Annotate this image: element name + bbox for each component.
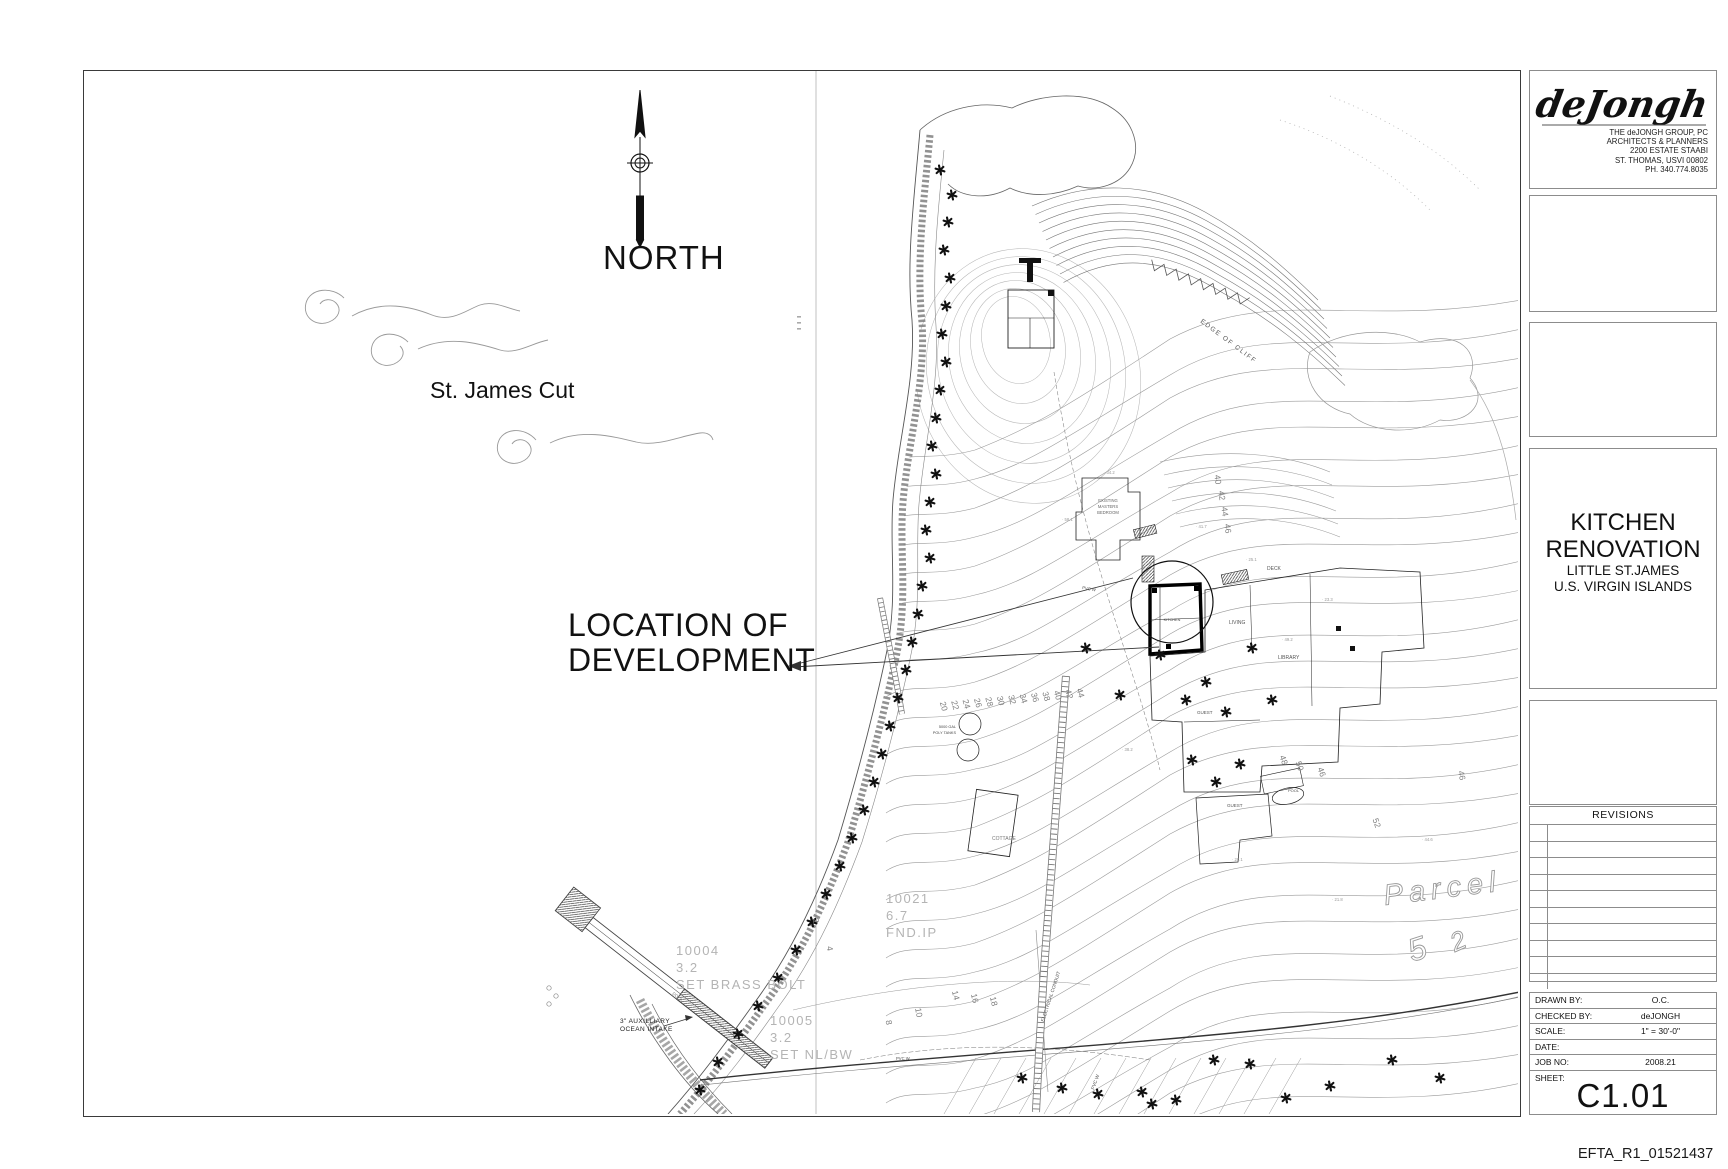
revision-row — [1530, 891, 1716, 908]
empty-panel-box-2 — [1529, 322, 1717, 437]
revision-desc-cell — [1548, 957, 1716, 973]
info-row-sheet: SHEET: C1.01 — [1530, 1071, 1716, 1118]
checked-by-label: CHECKED BY: — [1530, 1009, 1605, 1024]
title-block-info: DRAWN BY: O.C. CHECKED BY: deJONGH SCALE… — [1529, 992, 1717, 1115]
firm-address: THE deJONGH GROUP, PC ARCHITECTS & PLANN… — [1607, 128, 1708, 174]
revision-number-cell — [1530, 891, 1548, 907]
revision-desc-cell — [1548, 858, 1716, 874]
revision-row — [1530, 908, 1716, 925]
project-title-2: RENOVATION — [1530, 536, 1716, 563]
revision-desc-cell — [1548, 825, 1716, 841]
date-label: DATE: — [1530, 1040, 1605, 1055]
ocean-intake-note: 3" AUXILLIARY OCEAN INTAKE — [620, 1018, 673, 1034]
job-no-value: 2008.21 — [1605, 1055, 1716, 1070]
drawn-by-label: DRAWN BY: — [1530, 993, 1605, 1008]
info-row-checked-by: CHECKED BY: deJONGH — [1530, 1009, 1716, 1025]
revision-desc-cell — [1548, 974, 1716, 990]
project-subtitle-1: LITTLE ST.JAMES — [1530, 563, 1716, 579]
signature-text: deJongh — [1533, 82, 1712, 126]
revision-number-cell — [1530, 825, 1548, 841]
survey-point-10005: 10005 3.2 SET NL/BW — [770, 1012, 853, 1063]
scale-label: SCALE: — [1530, 1024, 1605, 1039]
revisions-box: REVISIONS — [1529, 806, 1717, 982]
info-row-scale: SCALE: 1" = 30'-0" — [1530, 1024, 1716, 1040]
revision-number-cell — [1530, 941, 1548, 957]
firm-signature: deJongh — [1530, 73, 1714, 133]
survey-id: 10004 — [676, 942, 806, 959]
firm-line: PH. 340.774.8035 — [1607, 165, 1708, 174]
location-line-1: LOCATION OF — [568, 608, 815, 643]
checked-by-value: deJONGH — [1605, 1009, 1716, 1024]
revision-row — [1530, 858, 1716, 875]
empty-panel-box-1 — [1529, 195, 1717, 312]
survey-id: 10021 — [886, 890, 938, 907]
survey-elev: 6.7 — [886, 907, 938, 924]
project-title-1: KITCHEN — [1530, 509, 1716, 536]
water-name-label: St. James Cut — [430, 377, 574, 404]
revision-number-cell — [1530, 875, 1548, 891]
north-label: NORTH — [603, 239, 725, 277]
survey-desc: FND.IP — [886, 924, 938, 941]
file-reference: EFTA_R1_01521437 — [1578, 1146, 1715, 1162]
empty-panel-box-3 — [1529, 700, 1717, 805]
revision-desc-cell — [1548, 875, 1716, 891]
sheet-number: C1.01 — [1530, 1077, 1716, 1115]
location-of-development-label: LOCATION OF DEVELOPMENT — [568, 608, 815, 678]
revision-desc-cell — [1548, 941, 1716, 957]
revision-desc-cell — [1548, 842, 1716, 858]
revision-number-cell — [1530, 858, 1548, 874]
project-subtitle-2: U.S. VIRGIN ISLANDS — [1530, 579, 1716, 595]
survey-desc: SET BRASS BOLT — [676, 976, 806, 993]
firm-line: ARCHITECTS & PLANNERS — [1607, 137, 1708, 146]
intake-line-2: OCEAN INTAKE — [620, 1026, 673, 1034]
revision-number-cell — [1530, 842, 1548, 858]
revision-number-cell — [1530, 924, 1548, 940]
revision-number-cell — [1530, 908, 1548, 924]
revision-row — [1530, 941, 1716, 958]
revision-row — [1530, 875, 1716, 892]
survey-point-10021: 10021 6.7 FND.IP — [886, 890, 938, 941]
info-row-date: DATE: — [1530, 1040, 1716, 1056]
survey-desc: SET NL/BW — [770, 1046, 853, 1063]
survey-point-10004: 10004 3.2 SET BRASS BOLT — [676, 942, 806, 993]
drawing-sheet: 2022242628303234363840424440424446485046… — [0, 0, 1728, 1169]
survey-elev: 3.2 — [770, 1029, 853, 1046]
firm-line: THE deJONGH GROUP, PC — [1607, 128, 1708, 137]
revisions-table — [1530, 825, 1716, 989]
revisions-header: REVISIONS — [1530, 807, 1716, 825]
revision-row — [1530, 825, 1716, 842]
drawn-by-value: O.C. — [1605, 993, 1716, 1008]
revision-desc-cell — [1548, 924, 1716, 940]
info-row-drawn-by: DRAWN BY: O.C. — [1530, 993, 1716, 1009]
revision-desc-cell — [1548, 891, 1716, 907]
firm-line: ST. THOMAS, USVI 00802 — [1607, 156, 1708, 165]
date-value — [1605, 1040, 1716, 1055]
revision-row — [1530, 842, 1716, 859]
revision-number-cell — [1530, 974, 1548, 990]
revision-desc-cell — [1548, 908, 1716, 924]
revision-row — [1530, 924, 1716, 941]
survey-id: 10005 — [770, 1012, 853, 1029]
revision-row — [1530, 957, 1716, 974]
firm-line: 2200 ESTATE STAABI — [1607, 146, 1708, 155]
scale-value: 1" = 30'-0" — [1605, 1024, 1716, 1039]
firm-logo-box: deJongh THE deJONGH GROUP, PC ARCHITECTS… — [1529, 70, 1717, 189]
info-row-job-no: JOB NO: 2008.21 — [1530, 1055, 1716, 1071]
survey-elev: 3.2 — [676, 959, 806, 976]
revision-number-cell — [1530, 957, 1548, 973]
revision-row — [1530, 974, 1716, 990]
location-line-2: DEVELOPMENT — [568, 643, 815, 678]
project-title-box: KITCHEN RENOVATION LITTLE ST.JAMES U.S. … — [1529, 448, 1717, 689]
intake-line-1: 3" AUXILLIARY — [620, 1018, 673, 1026]
job-no-label: JOB NO: — [1530, 1055, 1605, 1070]
